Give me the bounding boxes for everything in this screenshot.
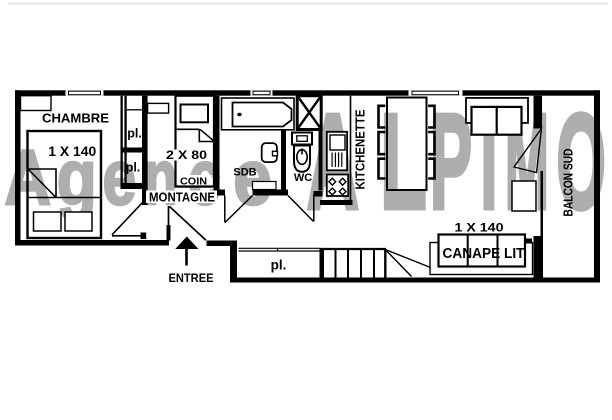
svg-text:KITCHENETTE: KITCHENETTE [353, 109, 368, 189]
svg-text:n: n [144, 133, 177, 221]
svg-text:MONTAGNE: MONTAGNE [149, 190, 215, 204]
svg-text:CANAPE LIT: CANAPE LIT [443, 246, 525, 262]
svg-text:CHAMBRE: CHAMBRE [42, 110, 109, 125]
svg-text:SDB: SDB [233, 167, 256, 179]
svg-text:1 X 140: 1 X 140 [48, 144, 96, 159]
svg-text:pl.: pl. [127, 127, 142, 141]
svg-text:BALCON SUD: BALCON SUD [561, 149, 576, 217]
svg-text:e: e [103, 133, 137, 221]
svg-text:pl.: pl. [271, 258, 287, 273]
svg-text:WC: WC [294, 172, 312, 184]
svg-text:1 X 140: 1 X 140 [455, 221, 504, 235]
svg-text:ENTREE: ENTREE [169, 273, 214, 285]
svg-text:pl.: pl. [126, 161, 141, 175]
svg-text:2 X 80: 2 X 80 [166, 150, 207, 162]
svg-text:COIN: COIN [180, 176, 207, 188]
